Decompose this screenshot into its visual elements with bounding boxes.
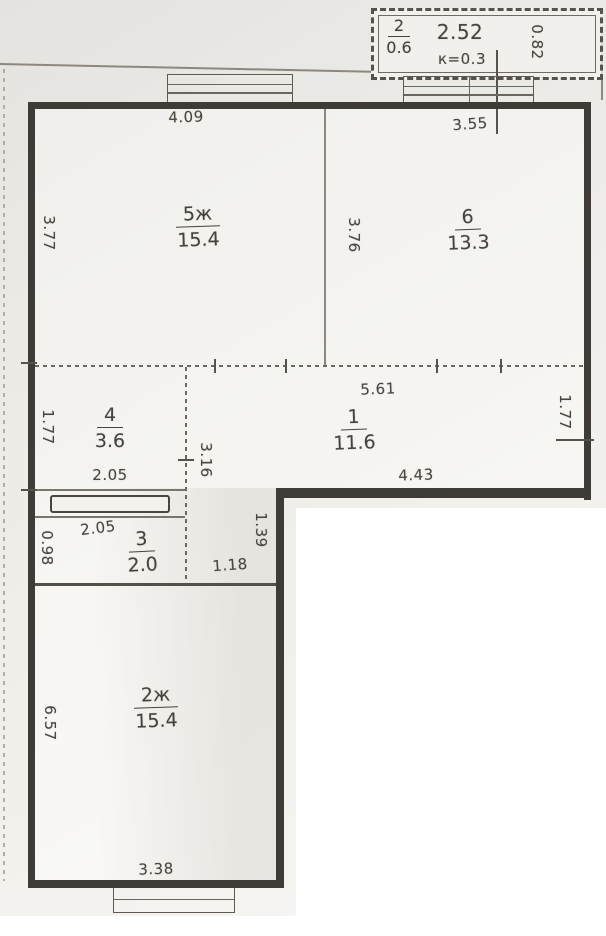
balcony-coefficient: к=0.3	[430, 50, 494, 68]
dim-room4-height: 1.77	[40, 402, 56, 452]
window-balcony-unit	[403, 76, 534, 103]
room3-area: 2.0	[108, 552, 177, 578]
partition-corridor-dashed	[185, 367, 187, 584]
hall-bottom-wall	[276, 488, 591, 498]
window-mullion	[469, 77, 471, 103]
wardrobe-niche-top-line	[35, 489, 185, 491]
balcony-depth-dim: 0.82	[529, 17, 545, 67]
room2-number: 2ж	[134, 683, 178, 708]
room6-number: 6	[454, 206, 481, 231]
dim-room2-height: 6.57	[42, 698, 58, 748]
tick-corridor-partition	[178, 459, 194, 461]
room3-number: 3	[128, 527, 155, 552]
dim-room5-height: 3.77	[41, 208, 57, 258]
tick-door-room6	[436, 359, 438, 373]
room-label-2zh: 2ж 15.4	[119, 683, 193, 733]
adjacent-building-line	[0, 63, 372, 73]
room4-number: 4	[97, 404, 123, 428]
room5-area: 15.4	[158, 228, 239, 253]
tick-door-room5	[214, 359, 216, 373]
dim-room6-height: 3.76	[346, 210, 362, 260]
wardrobe-symbol	[50, 495, 170, 513]
scanned-paper: 2 0.6 2.52 к=0.3 0.82 5ж 15.4 6 13.3 1 1…	[0, 0, 606, 936]
room4-area: 3.6	[76, 430, 144, 452]
room-label-6: 6 13.3	[427, 205, 509, 256]
outer-wall-bottom	[28, 880, 284, 888]
dim-corridor-height: 3.16	[198, 435, 214, 485]
balcony-number: 2	[388, 16, 410, 37]
lower-wing-right-wall	[276, 488, 284, 888]
dim-hall-height-right: 1.77	[557, 387, 573, 437]
tick-door-room6-b	[500, 359, 502, 373]
partition-room3-room2	[35, 583, 276, 586]
balcony-width-dim: 2.52	[428, 20, 492, 44]
room-label-5zh: 5ж 15.4	[157, 202, 239, 253]
room2-area: 15.4	[120, 709, 193, 733]
adjacent-wall-dashed	[3, 69, 5, 881]
room1-area: 11.6	[318, 431, 391, 455]
outer-wall-left	[28, 102, 35, 888]
window-room2	[113, 888, 235, 913]
tick-left-wall-lower	[21, 489, 37, 491]
dim-corridor-lower-height: 1.39	[253, 505, 269, 555]
outer-wall-top	[28, 102, 591, 109]
partition-room5-room6	[324, 109, 326, 366]
balcony-label: 2 0.6	[378, 16, 420, 57]
dim-room5-width: 4.09	[158, 107, 215, 127]
tick-door-room5-b	[285, 359, 287, 373]
tick-left-wall-upper	[21, 362, 37, 364]
tick-entrance-right-wall	[556, 439, 594, 441]
room1-number: 1	[340, 406, 367, 431]
floor-plan-scan: 2 0.6 2.52 к=0.3 0.82 5ж 15.4 6 13.3 1 1…	[0, 0, 606, 936]
dim-room2-width: 3.38	[128, 859, 185, 879]
dim-room3-height: 0.98	[39, 523, 55, 573]
room-label-1: 1 11.6	[317, 405, 391, 455]
dim-room4-width: 2.05	[82, 466, 138, 484]
dim-hall-width-top: 5.61	[350, 379, 407, 399]
room-label-4: 4 3.6	[76, 404, 144, 452]
window-room5	[167, 74, 293, 103]
room5-number: 5ж	[176, 202, 220, 227]
dim-hall-width-bottom: 4.43	[388, 465, 445, 485]
room6-area: 13.3	[428, 231, 509, 256]
balcony-area: 0.6	[378, 38, 420, 57]
